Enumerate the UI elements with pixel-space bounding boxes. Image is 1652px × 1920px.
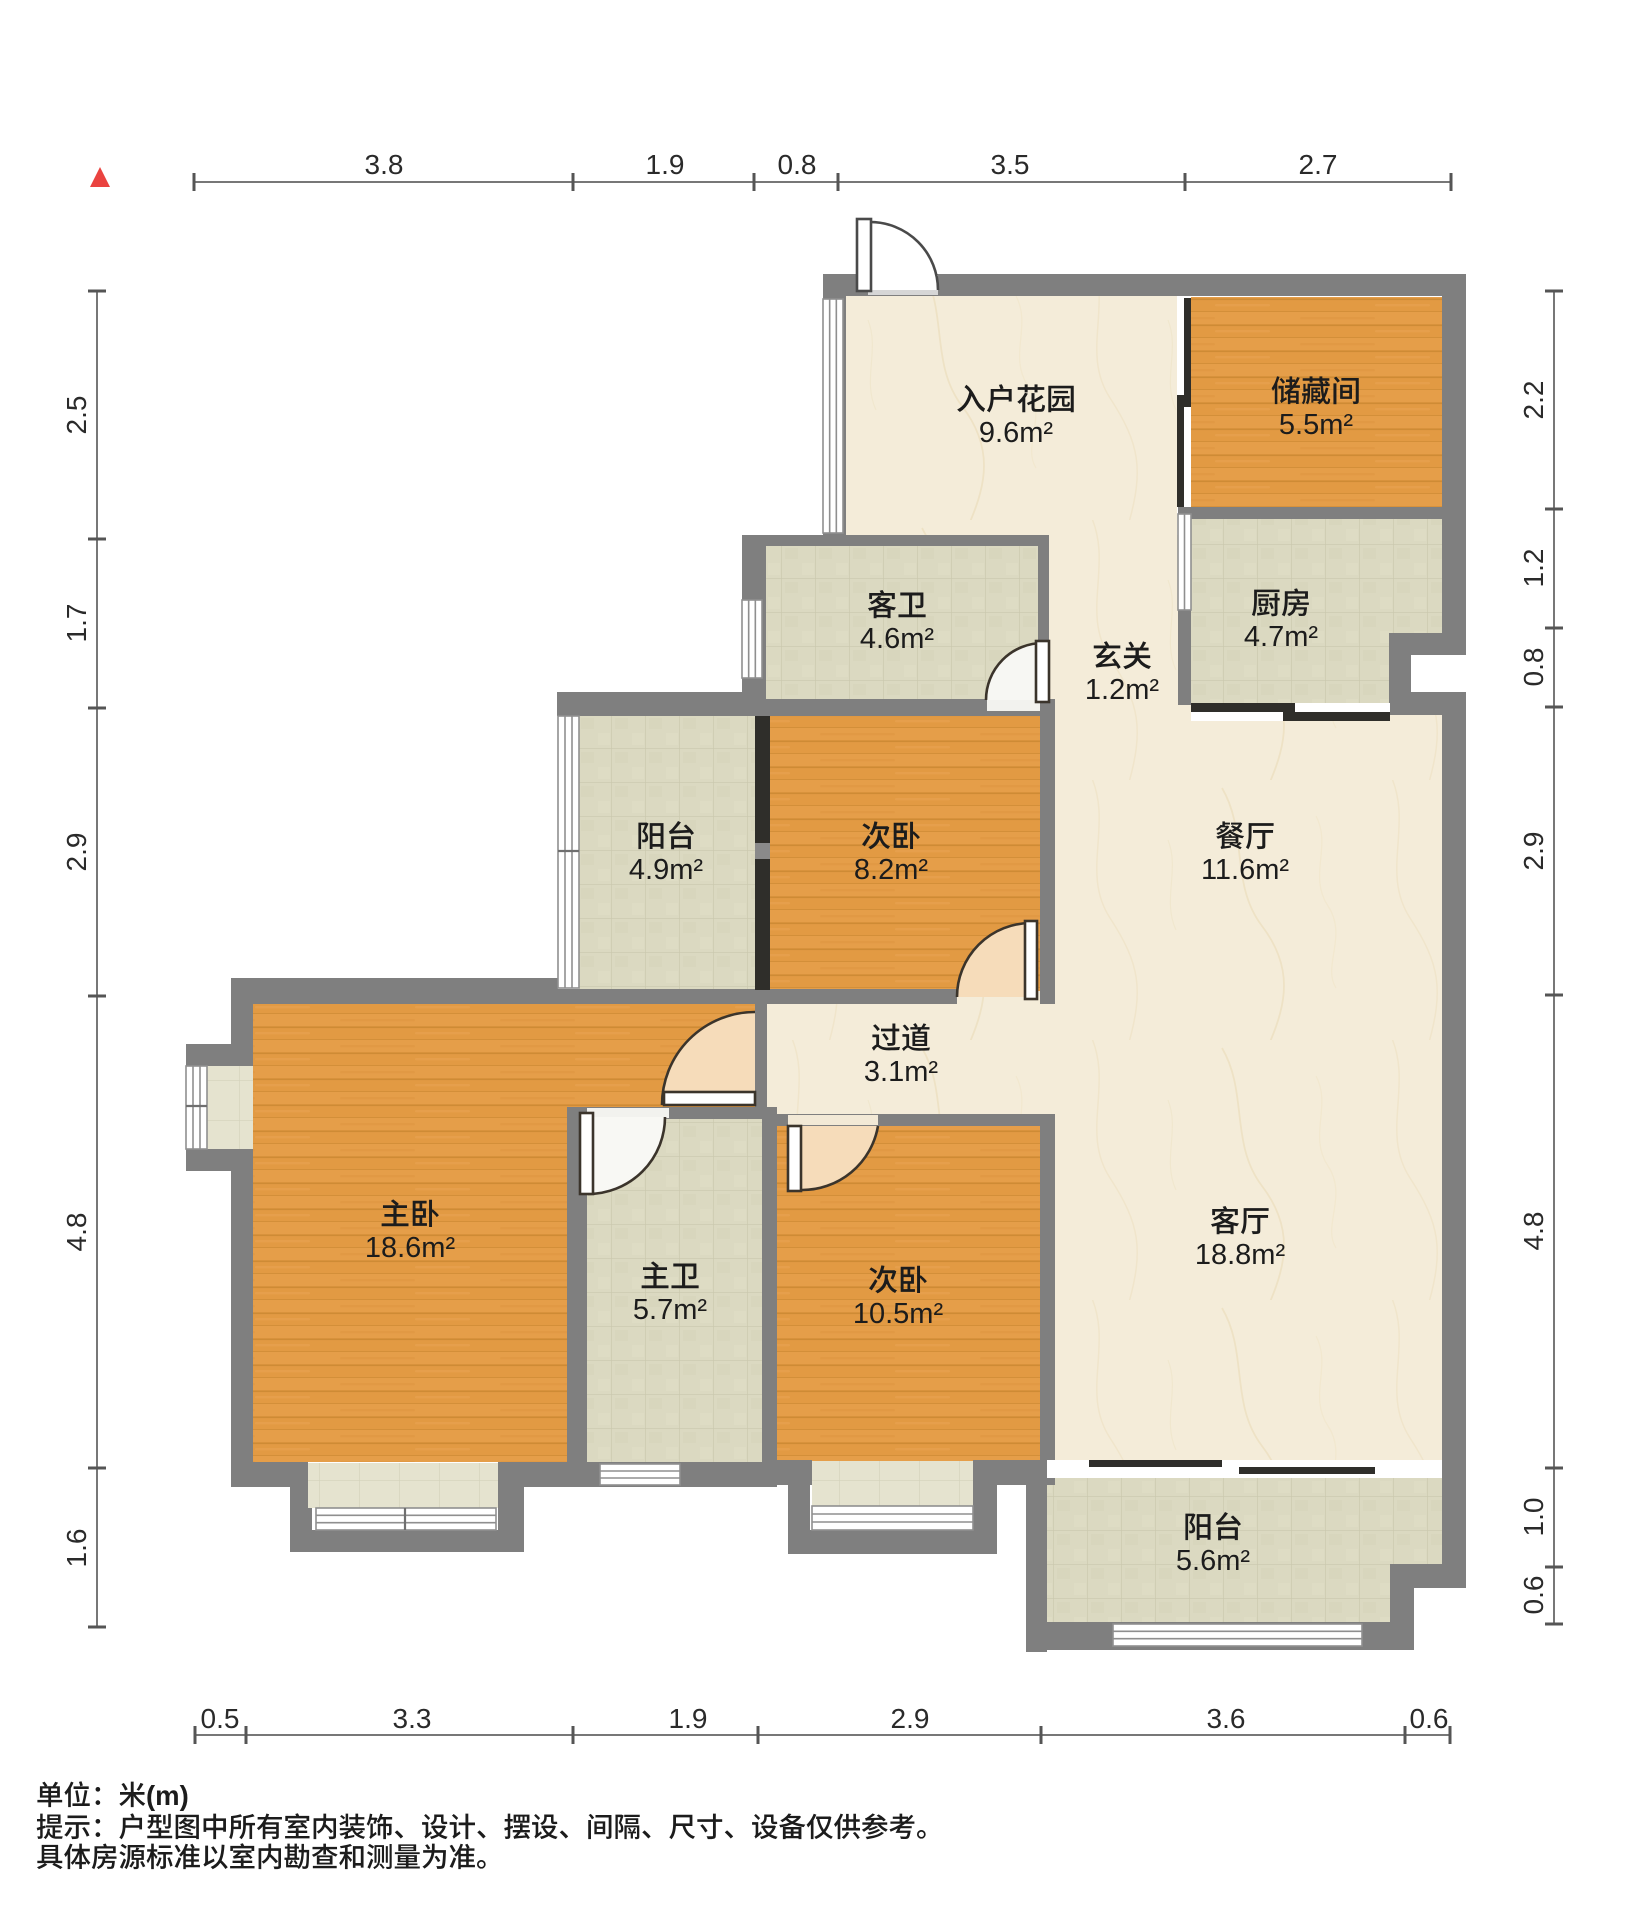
svg-text:2.9: 2.9	[891, 1703, 930, 1734]
svg-text:4.6m²: 4.6m²	[860, 623, 934, 655]
svg-text:3.1m²: 3.1m²	[864, 1056, 938, 1088]
svg-text:1.7: 1.7	[61, 604, 92, 643]
svg-text:0.5: 0.5	[201, 1703, 240, 1734]
svg-text:0.8: 0.8	[1518, 648, 1549, 687]
svg-text:1.9: 1.9	[669, 1703, 708, 1734]
svg-text:2.5: 2.5	[61, 396, 92, 435]
svg-text:18.6m²: 18.6m²	[365, 1232, 456, 1264]
svg-text:3.8: 3.8	[365, 149, 404, 180]
svg-text:1.6: 1.6	[61, 1529, 92, 1568]
svg-text:1.0: 1.0	[1518, 1498, 1549, 1537]
svg-text:3.3: 3.3	[393, 1703, 432, 1734]
svg-text:11.6m²: 11.6m²	[1201, 854, 1289, 886]
svg-text:4.8: 4.8	[61, 1213, 92, 1252]
svg-text:3.6: 3.6	[1207, 1703, 1246, 1734]
svg-text:0.6: 0.6	[1518, 1576, 1549, 1615]
svg-text:5.5m²: 5.5m²	[1279, 409, 1353, 441]
svg-text:2.9: 2.9	[1518, 832, 1549, 871]
svg-text:18.8m²: 18.8m²	[1195, 1239, 1286, 1271]
svg-text:4.9m²: 4.9m²	[629, 854, 703, 886]
svg-text:1.2: 1.2	[1518, 549, 1549, 588]
svg-text:0.6: 0.6	[1410, 1703, 1449, 1734]
svg-text:1.9: 1.9	[646, 149, 685, 180]
svg-text:4.8: 4.8	[1518, 1212, 1549, 1251]
svg-text:0.8: 0.8	[778, 149, 817, 180]
svg-text:(m): (m)	[146, 1780, 189, 1811]
svg-text:9.6m²: 9.6m²	[979, 417, 1053, 449]
svg-text:10.5m²: 10.5m²	[853, 1298, 944, 1330]
svg-text:2.7: 2.7	[1299, 149, 1338, 180]
svg-text:8.2m²: 8.2m²	[854, 854, 928, 886]
svg-text:5.7m²: 5.7m²	[633, 1294, 707, 1326]
svg-text:2.9: 2.9	[61, 833, 92, 872]
svg-text:4.7m²: 4.7m²	[1244, 621, 1318, 653]
svg-text:1.2m²: 1.2m²	[1085, 674, 1159, 706]
svg-text:2.2: 2.2	[1518, 381, 1549, 420]
svg-text:5.6m²: 5.6m²	[1176, 1545, 1250, 1577]
svg-text:3.5: 3.5	[991, 149, 1030, 180]
